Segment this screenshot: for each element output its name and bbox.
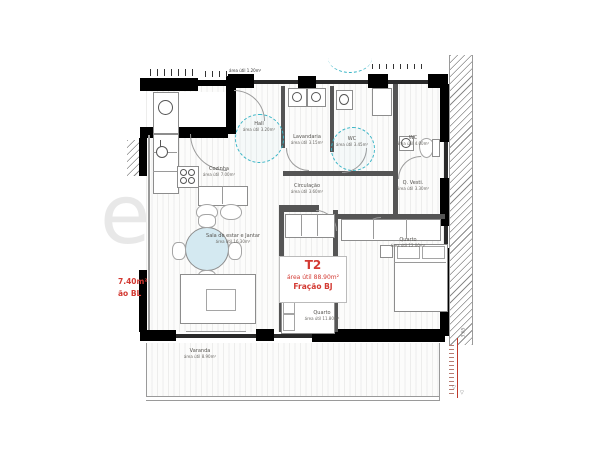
- room-area: área útil 3.30m²: [397, 186, 429, 191]
- neighbor-fraction: ão BL: [118, 288, 148, 300]
- window-top: [254, 80, 298, 84]
- kitchen-stool: [220, 204, 242, 220]
- sliding-door-bedroom: [274, 334, 312, 338]
- dimension-ticks: [205, 71, 229, 77]
- wall: [196, 80, 230, 86]
- room-area: área útil 8.90m²: [184, 354, 216, 359]
- wall-line: [148, 135, 150, 332]
- wardrobe: [285, 214, 335, 238]
- room-area: área útil 3.60m²: [291, 189, 323, 194]
- unit-area: área útil 88.90m²: [280, 274, 346, 281]
- wc-dashed-circle-marker: [331, 127, 375, 171]
- burner-icon: [188, 177, 195, 184]
- balcony-edge: [146, 400, 440, 401]
- burner-icon: [188, 169, 195, 176]
- dimension-ticks: [150, 69, 196, 76]
- window-right: [444, 142, 448, 178]
- room-area: área útil 16.30m²: [206, 239, 260, 244]
- floor-plan: ezone: [0, 0, 600, 450]
- balcony-edge: [439, 343, 440, 401]
- room-label-cozinha: Cozinha área útil 7.00m²: [203, 166, 235, 177]
- sliding-door-leaf: [186, 331, 246, 332]
- room-label-hall: Hall área útil 3.20m²: [243, 121, 275, 132]
- red-dimension-line: [457, 338, 458, 398]
- blanket-line: [394, 262, 446, 263]
- wall: [140, 78, 198, 91]
- section-hatch: [127, 140, 139, 176]
- wall: [228, 74, 254, 88]
- unit-type: T2: [280, 259, 346, 272]
- fixture-symbol-icon: [156, 146, 168, 158]
- level-mark-icon: ▽: [460, 391, 464, 396]
- wardrobe-divider: [317, 214, 318, 236]
- room-area: área útil 12.00m²: [391, 243, 426, 248]
- room-area: área útil 3.20m²: [243, 127, 275, 132]
- chair: [172, 242, 186, 260]
- partition: [283, 171, 395, 176]
- neighbor-unit-label: 7.40m² ão BL: [118, 276, 148, 300]
- room-label-quarto-right: Quarto área útil 12.00m²: [391, 237, 426, 248]
- room-label-wc2: WC área útil 4.00m²: [397, 135, 429, 146]
- fixture-symbol-stem: [160, 140, 161, 147]
- neighbor-area: 7.40m²: [118, 276, 148, 288]
- burner-icon: [180, 169, 187, 176]
- window-top: [316, 80, 368, 84]
- room-label-lavandaria: Lavandaria área útil 3.15m²: [291, 134, 323, 145]
- unit-fraction: Fração BJ: [280, 282, 346, 291]
- balcony-edge: [146, 396, 440, 397]
- small-area-annotation: área útil 1.20m²: [229, 68, 261, 73]
- wall: [256, 329, 274, 341]
- sliding-door-living: [176, 334, 256, 338]
- partition: [393, 84, 398, 215]
- chair: [198, 214, 216, 228]
- shower-icon: [372, 88, 392, 116]
- level-mark-icon: ▽: [452, 386, 456, 391]
- unit-label-box: T2 área útil 88.90m² Fração BJ: [279, 256, 347, 303]
- hatch-border: [449, 55, 450, 345]
- washer-drum-icon: [292, 92, 302, 102]
- room-area: área útil 7.00m²: [203, 172, 235, 177]
- counter-divider: [222, 186, 223, 204]
- room-label-circulacao: Circulação área útil 3.60m²: [291, 183, 323, 194]
- dryer-drum-icon: [311, 92, 321, 102]
- room-area: área útil 3.15m²: [291, 140, 323, 145]
- burner-icon: [180, 177, 187, 184]
- room-label-quarto-mid: Quarto área útil 11.80m²: [305, 310, 340, 321]
- kitchen-counter: [198, 186, 248, 206]
- wall: [139, 138, 147, 176]
- cabinet-divider: [153, 171, 177, 172]
- room-label-sala: Sala de estar e Jantar área útil 16.30m²: [206, 233, 260, 244]
- kitchen-cabinet-column: [153, 134, 179, 194]
- wall: [140, 330, 176, 341]
- balcony-edge: [146, 343, 147, 397]
- room-area: área útil 4.00m²: [397, 141, 429, 146]
- dashed-arc-marker: [328, 58, 372, 73]
- sink-basin-icon: [158, 100, 173, 115]
- sofa-cushion: [206, 289, 236, 311]
- room-label-qvest: Q. Vesti. área útil 3.30m²: [397, 180, 429, 191]
- room-label-wc1: WC área útil 3.45m²: [336, 136, 368, 147]
- washbasin-bowl-icon: [339, 94, 349, 105]
- toilet-tank-icon: [432, 139, 440, 157]
- wardrobe-divider: [406, 219, 407, 239]
- room-label-varanda: Varanda área útil 8.90m²: [184, 348, 216, 359]
- wall: [368, 74, 388, 88]
- hatch-border: [472, 55, 473, 345]
- dimension-text: 3.65: [462, 327, 467, 337]
- section-hatch: [450, 55, 473, 345]
- wall: [298, 76, 316, 88]
- dimension-ticks: [372, 64, 422, 69]
- pillow: [283, 314, 295, 331]
- room-area: área útil 11.80m²: [305, 316, 340, 321]
- wardrobe-divider: [373, 219, 374, 239]
- room-area: área útil 3.45m²: [336, 142, 368, 147]
- chair: [228, 242, 242, 260]
- wardrobe-divider: [301, 214, 302, 236]
- partition: [279, 205, 319, 212]
